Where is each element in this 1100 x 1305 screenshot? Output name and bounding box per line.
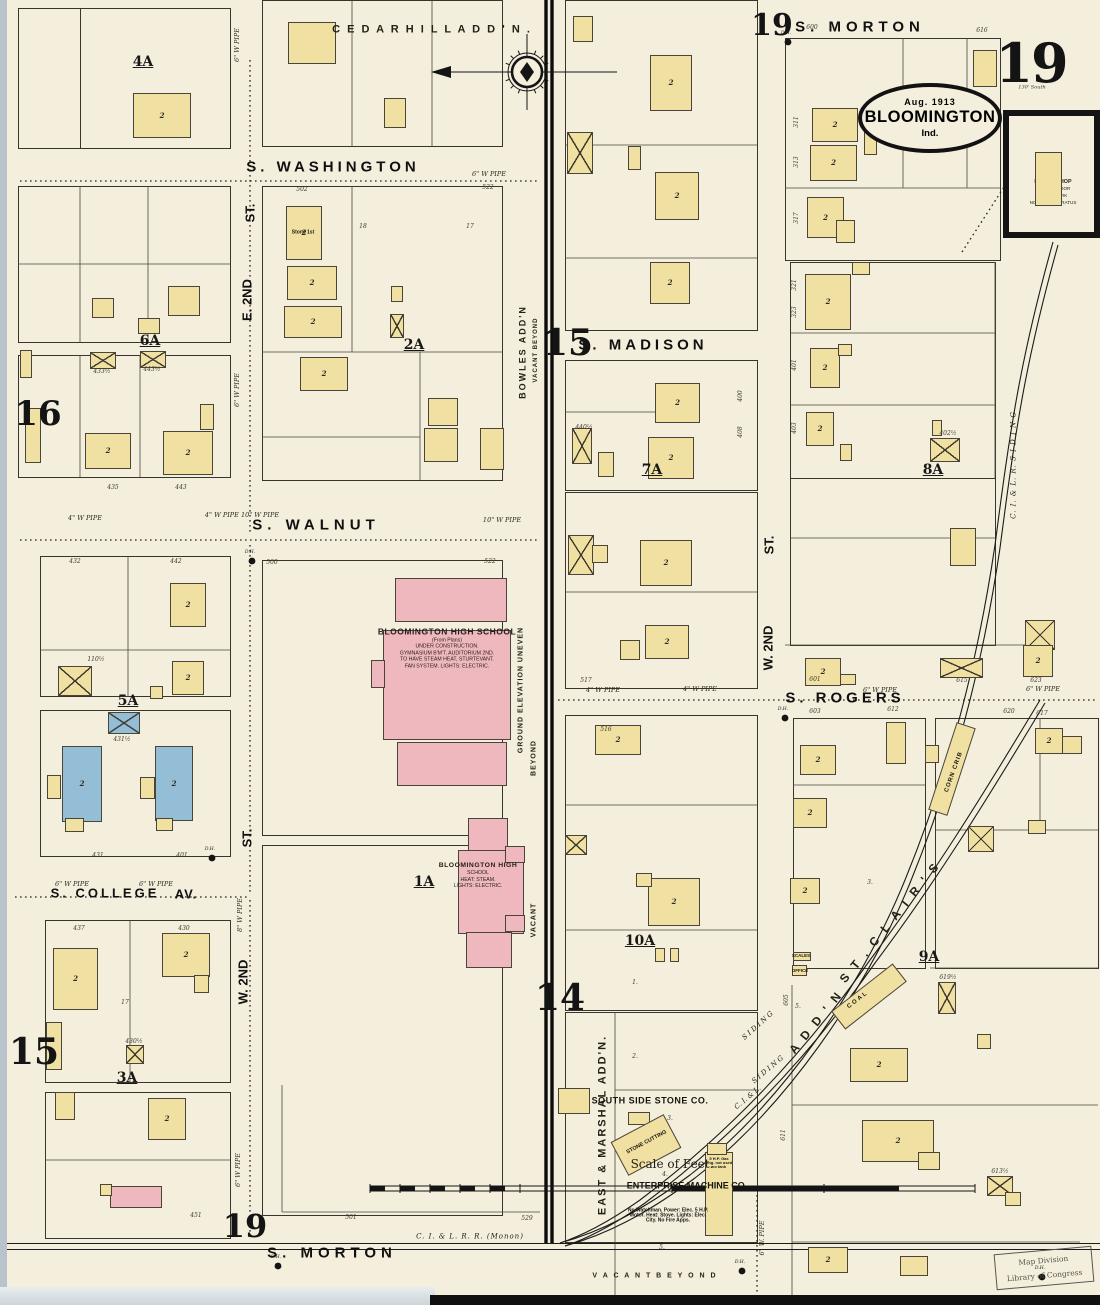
lot-number: 17 xyxy=(121,1000,129,1006)
frame-building xyxy=(47,775,61,799)
frame-building: 2 xyxy=(162,933,210,977)
frame-building xyxy=(20,350,32,378)
frame-building xyxy=(126,1045,144,1064)
lot-number: 435 xyxy=(107,485,118,491)
lot-number: 311 xyxy=(794,116,800,127)
story-count: 2 xyxy=(322,369,327,378)
brick-building xyxy=(397,742,507,786)
street-name: ST. xyxy=(763,536,776,555)
frame-building xyxy=(886,722,906,764)
addition-name: V A C A N T B E Y O N D xyxy=(592,1273,717,1280)
pipe-label: 6" W PIPE xyxy=(863,687,897,694)
pipe-label: 6" W. PIPE xyxy=(759,1221,766,1256)
frame-building: 2 xyxy=(655,172,699,220)
frame-building: 2 xyxy=(645,625,689,659)
lot-number: 4. xyxy=(662,1172,668,1178)
lot-number: 408 xyxy=(738,426,744,437)
story-count: 2 xyxy=(896,1136,901,1145)
pipe-label: 6" W PIPE xyxy=(234,28,241,62)
frame-building: 2 xyxy=(810,145,857,181)
frame-building xyxy=(573,16,593,42)
block-outline xyxy=(19,187,231,343)
frame-building: 2 xyxy=(170,583,206,627)
frame-building: 2 xyxy=(284,306,342,338)
stone-building xyxy=(108,712,140,734)
street-name: S. WASHINGTON xyxy=(246,160,419,175)
frame-building: 2 xyxy=(805,274,851,330)
lot-number: 433½ xyxy=(93,369,110,375)
story-count: 2 xyxy=(823,363,828,372)
addition-name: BOWLES ADD'N xyxy=(519,305,528,399)
compass-spoke xyxy=(540,85,543,88)
industry-label: SCALES xyxy=(792,954,810,959)
frame-building xyxy=(156,818,173,831)
block-number: 14 xyxy=(535,980,585,1016)
lot-number: 600 xyxy=(806,25,817,31)
lot-number: 431½ xyxy=(113,737,130,743)
lot-number: 401 xyxy=(792,359,798,370)
railroad-label: C. I. & L. R. R. (Monon) xyxy=(416,1234,524,1241)
scale-bar-segment xyxy=(370,1186,385,1191)
block-number: 15 xyxy=(9,1034,59,1070)
stamp-line-2: Library of Congress xyxy=(1007,1268,1083,1284)
frame-building xyxy=(930,438,960,462)
block-letter: 4A xyxy=(133,55,154,69)
scale-bar-segment xyxy=(430,1186,445,1191)
block-outline xyxy=(566,493,758,689)
railroad-label: C. I. & L. R. S I D I N G xyxy=(1011,411,1018,519)
block-number: 19 xyxy=(751,11,793,41)
frame-building xyxy=(940,658,983,678)
lot-number: 619½ xyxy=(939,975,956,981)
frame-building: 2 xyxy=(800,745,836,775)
story-count: 2 xyxy=(665,637,670,646)
block-outline xyxy=(19,9,81,149)
hydrant-label: D.H. xyxy=(735,1261,745,1266)
frame-building xyxy=(628,146,641,170)
frame-building: 2 xyxy=(806,412,834,446)
story-count: 2 xyxy=(80,779,85,788)
lot-number: 611 xyxy=(781,1129,787,1140)
hydrant-dot xyxy=(209,855,216,862)
story-count: 2 xyxy=(186,673,191,682)
frame-building xyxy=(92,298,114,318)
frame-building xyxy=(918,1152,940,1170)
story-count: 2 xyxy=(186,600,191,609)
street-name: AV. xyxy=(175,888,198,901)
frame-building xyxy=(977,1034,991,1049)
scan-edge-left xyxy=(0,0,7,1305)
lot-number: 516 xyxy=(600,727,611,733)
lot-number: 443 xyxy=(175,485,186,491)
frame-building: 2 xyxy=(790,878,820,904)
addition-name: VACANT xyxy=(531,903,538,938)
frame-building: 2 xyxy=(650,262,690,304)
inset-box: BOILER SHOPCINDER FLOORHAND WORKNO FIRE … xyxy=(1003,110,1100,238)
lot-number: 430½ xyxy=(125,1039,142,1045)
lot-number: 402½ xyxy=(939,431,956,437)
hydrant-label: D.H. xyxy=(271,1256,281,1261)
lot-number: 623 xyxy=(1030,678,1041,684)
frame-building: 2 xyxy=(1023,645,1053,677)
lot-number: 502 xyxy=(296,187,307,193)
frame-building: 2 xyxy=(793,798,827,828)
lot-number: 522 xyxy=(484,559,495,565)
frame-building xyxy=(58,666,92,696)
story-count: 2 xyxy=(669,453,674,462)
pipe-label: 6" W PIPE xyxy=(234,373,241,407)
lot-number: 615 xyxy=(956,678,967,684)
compass-spoke xyxy=(506,63,510,65)
lot-number: 437 xyxy=(73,926,84,932)
pipe-label: 4" W PIPE 10" W PIPE xyxy=(205,512,279,519)
frame-building: 2 xyxy=(148,1098,186,1140)
frame-building xyxy=(55,1092,75,1120)
frame-building xyxy=(558,1088,590,1114)
stamp-line-1: Map Division xyxy=(1018,1254,1069,1267)
stone-building: 2 xyxy=(155,746,193,821)
lot-number: 130' South xyxy=(1018,86,1045,91)
lot-number: 442 xyxy=(170,559,181,565)
block-letter: 7A xyxy=(642,463,663,477)
frame-building: 2 xyxy=(850,1048,908,1082)
story-count: 2 xyxy=(1047,736,1052,745)
lot-number: 522 xyxy=(482,185,493,191)
story-count: 2 xyxy=(186,448,191,457)
lot-number: 400 xyxy=(738,390,744,401)
lot-number: 430 xyxy=(178,926,189,932)
lot-number: 612 xyxy=(887,707,898,713)
compass-spoke xyxy=(518,51,520,55)
hydrant-dot xyxy=(275,1263,282,1270)
hydrant-label: D.H. xyxy=(245,551,255,556)
lot-number: 603 xyxy=(809,709,820,715)
pipe-label: 4" W PIPE xyxy=(683,686,717,693)
story-count: 2 xyxy=(833,120,838,129)
lot-number: 605 xyxy=(784,994,790,1005)
lot-number: 440½ xyxy=(575,425,592,431)
frame-building: 2 xyxy=(300,357,348,391)
block-letter: 1A xyxy=(414,875,435,889)
story-count: 2 xyxy=(1036,656,1041,665)
lot-number: 17 xyxy=(466,224,474,230)
lot-number: 3. xyxy=(667,1116,673,1122)
lot-number: 1. xyxy=(632,980,638,986)
pipe-label: 6" W PIPE xyxy=(55,881,89,888)
story-count: 2 xyxy=(160,111,165,120)
frame-building xyxy=(655,948,665,962)
lot-number: 529 xyxy=(521,1216,532,1222)
lot-number: 5. xyxy=(659,1245,665,1251)
compass-spoke xyxy=(534,90,536,94)
pipe-label: 8" W PIPE xyxy=(237,898,244,932)
street-name: S. WALNUT xyxy=(252,518,380,533)
frame-building: 2 xyxy=(648,878,700,926)
scale-bar-segment xyxy=(824,1186,899,1191)
frame-building xyxy=(968,826,994,852)
lot-number: 323 xyxy=(792,306,798,317)
frame-building xyxy=(150,686,163,699)
frame-building: 2 xyxy=(650,55,692,111)
block-number: 19 xyxy=(223,1210,268,1242)
lot-number: 403 xyxy=(792,422,798,433)
addition-name: EAST & MARSHAL ADD'N. xyxy=(598,1035,609,1215)
brick-building xyxy=(505,915,525,932)
hydrant-dot xyxy=(782,715,789,722)
frame-building: 2 xyxy=(655,383,700,423)
frame-building xyxy=(852,262,870,275)
compass-spoke xyxy=(511,56,514,59)
frame-building: 2 xyxy=(810,348,840,388)
story-count: 2 xyxy=(310,278,315,287)
lot-number: 617 xyxy=(1036,711,1047,717)
frame-building xyxy=(950,528,976,566)
lot-number: 5. xyxy=(795,1004,801,1010)
lot-number: 432 xyxy=(69,559,80,565)
story-count: 2 xyxy=(831,158,836,167)
brick-building xyxy=(505,846,525,863)
frame-building xyxy=(900,1256,928,1276)
lot-number: 313 xyxy=(794,156,800,167)
block-letter: 9A xyxy=(919,950,940,964)
story-count: 2 xyxy=(823,213,828,222)
frame-building xyxy=(65,818,84,832)
frame-building xyxy=(1005,1192,1021,1206)
lot-number: 501 xyxy=(345,1215,356,1221)
addition-name: VACANT BEYOND xyxy=(533,318,539,383)
frame-building xyxy=(565,835,587,855)
brick-building xyxy=(468,818,508,852)
street-name: W. 2ND xyxy=(762,626,775,671)
frame-building xyxy=(938,982,956,1014)
high-school-label: BLOOMINGTON HIGH SCHOOL(From Plans)UNDER… xyxy=(378,626,516,669)
story-count: 2 xyxy=(826,297,831,306)
addition-name: GROUND ELEVATION UNEVEN xyxy=(518,627,525,753)
street-name: E. 2ND xyxy=(241,279,254,321)
brick-building xyxy=(395,578,507,622)
frame-building xyxy=(836,220,855,243)
sanborn-map-sheet: 22222222222222222222222222222222222222 S… xyxy=(0,0,1100,1305)
pipe-label: 6" W PIPE xyxy=(472,171,506,178)
street-name: ST. xyxy=(244,204,257,223)
stone-building: 2 xyxy=(62,746,102,822)
lot-number: 601 xyxy=(809,677,820,683)
map-state: Ind. xyxy=(922,128,939,139)
lot-number: 517 xyxy=(580,678,591,684)
map-city: BLOOMINGTON xyxy=(865,108,996,127)
lot-number: 2. xyxy=(632,1054,638,1060)
frame-building: 2 xyxy=(172,661,204,695)
frame-building xyxy=(140,777,155,799)
map-title-oval: Aug. 1913 BLOOMINGTON Ind. xyxy=(858,83,1002,153)
scale-bar-segment xyxy=(460,1186,475,1191)
hydrant-label: D.H. xyxy=(778,708,788,713)
frame-building: 2 xyxy=(53,948,98,1010)
compass-spoke xyxy=(534,51,536,55)
street-name: S. COLLEGE xyxy=(51,887,160,900)
frame-building: 2 xyxy=(640,540,692,586)
frame-building xyxy=(572,428,592,464)
industry-label: OFFICE xyxy=(792,969,809,974)
story-count: 2 xyxy=(672,897,677,906)
frame-building xyxy=(428,398,458,426)
frame-building: 2 xyxy=(808,1247,848,1273)
compass-spoke xyxy=(518,90,520,94)
frame-building xyxy=(1028,820,1046,834)
frame-building xyxy=(925,745,939,763)
scale-bar-segment xyxy=(490,1186,505,1191)
brick-building xyxy=(110,1186,162,1208)
industry-label: No Watchman. Power: Elec. 5 H.P. Motor. … xyxy=(626,1209,711,1224)
frame-building xyxy=(194,975,209,993)
frame-building xyxy=(636,873,652,887)
frame-building xyxy=(200,404,214,430)
frame-building xyxy=(480,428,504,470)
frame-building xyxy=(707,1143,727,1155)
lot-number: 443½ xyxy=(143,367,160,373)
lot-number: 500 xyxy=(266,560,277,566)
frame-building xyxy=(1062,736,1082,754)
block-number: 19 xyxy=(995,36,1066,90)
street-name: ST. xyxy=(241,829,254,848)
frame-building xyxy=(567,132,593,174)
scale-bar-segment xyxy=(400,1186,415,1191)
story-count: 2 xyxy=(184,950,189,959)
frame-building: 2 xyxy=(85,433,131,469)
lot-number: 3. xyxy=(867,880,873,886)
block-number: 16 xyxy=(14,397,61,431)
story-count: 2 xyxy=(808,808,813,817)
block-letter: 2A xyxy=(404,338,425,352)
pipe-label: 4" W PIPE xyxy=(586,687,620,694)
frame-building xyxy=(288,22,336,64)
story-count: 2 xyxy=(669,78,674,87)
compass-spoke xyxy=(506,79,510,81)
lot-number: 620 xyxy=(1003,709,1014,715)
street-name: S. MADISON xyxy=(578,338,707,353)
hydrant-dot xyxy=(249,558,256,565)
story-count: 2 xyxy=(616,735,621,744)
story-count: 2 xyxy=(675,398,680,407)
boiler-shop-building xyxy=(1035,152,1062,206)
frame-building xyxy=(592,545,608,563)
pipe-label: 6" W PIPE xyxy=(139,881,173,888)
scale-title: Scale of Feet. xyxy=(631,1157,714,1171)
lot-number: 401 xyxy=(176,853,187,859)
story-count: 2 xyxy=(668,278,673,287)
hydrant-dot xyxy=(739,1268,746,1275)
story-count: 2 xyxy=(826,1255,831,1264)
frame-building xyxy=(620,640,640,660)
frame-building: 2 xyxy=(1035,728,1063,754)
pipe-label: 10" W PIPE xyxy=(483,517,521,524)
block-outline xyxy=(566,716,758,1011)
frame-building xyxy=(391,286,403,302)
addition-name: C E D A R H I L L A D D ' N . xyxy=(332,25,532,36)
story-count: 2 xyxy=(803,886,808,895)
story-count: 2 xyxy=(106,446,111,455)
frame-building xyxy=(840,674,856,685)
lot-number: 18 xyxy=(359,224,367,230)
story-count: 2 xyxy=(311,317,316,326)
high-school-annex-label: BLOOMINGTON HIGHSCHOOLHEAT: STEAM.LIGHTS… xyxy=(439,862,518,890)
frame-building xyxy=(568,535,594,575)
story-count: 2 xyxy=(675,191,680,200)
lot-number: 616 xyxy=(976,28,987,34)
block-letter: 10A xyxy=(625,934,655,948)
frame-building xyxy=(840,444,852,461)
frame-building xyxy=(598,452,614,477)
frame-building: 2 xyxy=(163,431,213,475)
story-count: 2 xyxy=(664,558,669,567)
story-count: 2 xyxy=(877,1060,882,1069)
frame-building xyxy=(168,286,200,316)
block-letter: 5A xyxy=(118,694,139,708)
frame-building xyxy=(384,98,406,128)
industry-label: Stone 1st xyxy=(292,231,315,236)
story-count: 2 xyxy=(172,779,177,788)
pipe-label: 6" W PIPE xyxy=(235,1153,242,1187)
story-count: 2 xyxy=(165,1114,170,1123)
hydrant-label: D.H. xyxy=(205,848,215,853)
frame-building xyxy=(424,428,458,462)
lot-number: 431 xyxy=(92,853,103,859)
frame-building: 2 xyxy=(812,108,858,142)
frame-building xyxy=(973,50,997,87)
frame-building: 2 xyxy=(287,266,337,300)
industry-label: SOUTH SIDE STONE CO. xyxy=(592,1097,709,1106)
block-letter: 8A xyxy=(923,463,944,477)
pipe-label: 4" W PIPE xyxy=(68,515,102,522)
lot-number: 321 xyxy=(792,279,798,290)
block-number: 15 xyxy=(543,325,593,361)
lot-number: 613½ xyxy=(991,1169,1008,1175)
block-letter: 3A xyxy=(117,1071,138,1085)
lot-number: 451 xyxy=(190,1213,201,1219)
frame-building xyxy=(100,1184,112,1196)
frame-building xyxy=(670,948,679,962)
map-date: Aug. 1913 xyxy=(904,97,956,107)
industry-label: ENTERPRISE MACHINE CO. xyxy=(627,1182,748,1191)
story-count: 2 xyxy=(821,667,826,676)
frame-building xyxy=(138,318,160,334)
brick-building xyxy=(466,932,512,968)
story-count: 2 xyxy=(816,755,821,764)
lot-number: 110½ xyxy=(87,657,104,663)
block-letter: 6A xyxy=(140,334,161,348)
frame-building xyxy=(838,344,852,356)
addition-name: BEYOND xyxy=(531,740,538,776)
story-count: 2 xyxy=(73,974,78,983)
frame-building: 2 xyxy=(133,93,191,138)
pipe-label: 6" W PIPE xyxy=(1026,686,1060,693)
lot-number: 317 xyxy=(794,212,800,223)
street-name: S. MORTON xyxy=(267,1246,397,1261)
compass-spoke xyxy=(511,85,514,88)
story-count: 2 xyxy=(818,424,823,433)
frame-building xyxy=(90,352,116,369)
frame-building xyxy=(390,314,404,338)
street-name: W. 2ND xyxy=(237,960,250,1005)
scan-edge-dark xyxy=(430,1295,1100,1305)
compass-spoke xyxy=(540,56,543,59)
compass-west-arrow xyxy=(431,66,451,78)
scan-edge-bottom xyxy=(0,1287,435,1305)
hydrant-label: D.H. xyxy=(781,32,791,37)
